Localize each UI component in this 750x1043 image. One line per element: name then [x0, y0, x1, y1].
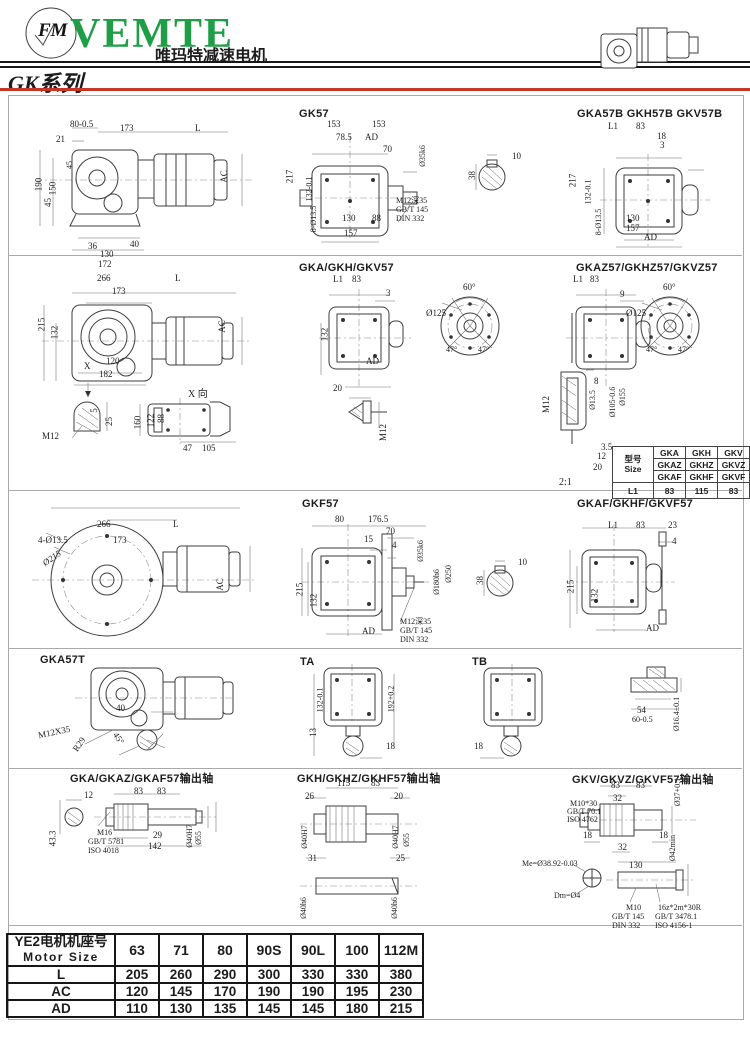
size-cell: GKV — [718, 447, 750, 459]
size-cell: GKHZ — [686, 459, 718, 471]
value-cell: 195 — [335, 983, 379, 1000]
motor-size-table: YE2电机机座号Motor Size 63 71 80 90S 90L 100 … — [6, 933, 424, 1018]
dim-label: 130 — [629, 861, 643, 870]
motor-col: 90S — [247, 934, 291, 966]
size-table: 型号Size GKAGKHGKV GKAZGKHZGKVZ GKAFGKHFGK… — [612, 446, 750, 499]
dim-label: Ø16.4±0.1 — [673, 697, 681, 731]
size-cell: 83 — [718, 483, 750, 499]
dim-label: Ø40H7 — [186, 824, 194, 848]
dim-label: 60° — [663, 283, 676, 292]
size-cell: GKH — [686, 447, 718, 459]
flange-view-drawing — [632, 286, 708, 362]
value-cell: 190 — [247, 983, 291, 1000]
dim-label: 45 — [44, 198, 53, 207]
dim-label: 130 — [342, 214, 356, 223]
value-cell: 145 — [159, 983, 203, 1000]
dim-label: 78.5 — [336, 133, 352, 142]
dim-label: AD — [646, 624, 659, 633]
dim-label: 47° — [478, 346, 489, 354]
value-cell: 190 — [291, 983, 335, 1000]
dim-label: 157 — [344, 229, 358, 238]
dim-label: 3 — [660, 141, 665, 150]
dim-label: 153 — [327, 120, 341, 129]
dim-label: 54 — [637, 706, 646, 715]
dim-label: AD — [362, 627, 375, 636]
dim-label: Ø125 — [426, 309, 446, 318]
dim-label: 4 — [672, 537, 677, 546]
dim-label: 38 — [468, 171, 477, 180]
dim-label: 172 — [98, 260, 112, 269]
value-cell: 145 — [291, 1000, 335, 1017]
dim-label: 40 — [116, 704, 125, 713]
dim-label: 83 — [636, 122, 645, 131]
dim-label: 4-Ø13.5 — [38, 536, 68, 545]
note-label: ISO 4156-1 — [655, 921, 693, 931]
value-cell: 330 — [291, 966, 335, 983]
dim-label: 115 — [337, 779, 350, 788]
dim-label: 40 — [130, 240, 139, 249]
dim-label: 15 — [364, 535, 373, 544]
dim-label: Ø55 — [403, 833, 411, 847]
dim-label: 18 — [583, 831, 592, 840]
dim-label: 132-0.1 — [305, 177, 313, 202]
motor-col: 63 — [115, 934, 159, 966]
dim-label: M12 — [42, 432, 59, 441]
gkahv-side-view-drawing — [30, 283, 258, 403]
row-label: L — [7, 966, 115, 983]
dim-label: M12 — [379, 424, 388, 441]
dim-label: 215 — [566, 580, 575, 594]
dim-label: 173 — [112, 287, 126, 296]
dim-label: 12 — [597, 452, 606, 461]
dim-label: AD — [644, 233, 657, 242]
dim-label: 153 — [372, 120, 386, 129]
dim-label: 142 — [148, 842, 162, 851]
dim-label: M12 — [542, 396, 551, 413]
dim-label: 18 — [474, 742, 483, 751]
value-cell: 135 — [203, 1000, 247, 1017]
size-cell: GKVF — [718, 471, 750, 483]
motor-table-header-cn: YE2电机机座号 — [14, 934, 107, 949]
dim-label: 83 — [352, 275, 361, 284]
motor-col: 90L — [291, 934, 335, 966]
dim-label: 120 — [106, 357, 120, 366]
size-table-header-en: Size — [624, 464, 641, 474]
motor-col: 112M — [379, 934, 423, 966]
value-cell: 215 — [379, 1000, 423, 1017]
dim-label: 18 — [659, 831, 668, 840]
dim-label: 13 — [309, 728, 318, 737]
dim-label: Ø40H7 — [392, 825, 400, 849]
dim-label: Ø35k6 — [419, 145, 427, 167]
dim-label: 173 — [120, 124, 134, 133]
dim-label: Me=Ø38.92-0.03 — [522, 860, 578, 868]
dim-label: 215 — [37, 318, 46, 332]
series-title: GK系列 — [8, 66, 83, 98]
gkahv-rear-view-drawing — [315, 283, 415, 393]
flange-view-drawing — [432, 286, 508, 362]
panel-title: GKAF/GKHF/GKVF57 — [577, 498, 693, 510]
dim-label: Ø40h6 — [391, 897, 399, 919]
dim-label: 47° — [646, 346, 657, 354]
dim-label: 122 — [146, 414, 155, 428]
motor-col: 80 — [203, 934, 247, 966]
size-cell: GKAF — [654, 471, 686, 483]
dim-label: 132 — [320, 328, 329, 342]
dim-label: 47° — [678, 346, 689, 354]
dim-label: 70 — [383, 145, 392, 154]
dim-label: AD — [366, 357, 379, 366]
value-cell: 145 — [247, 1000, 291, 1017]
catalog-page: FM VEMTE 唯玛特减速电机 GK系列 GK57 GKA57B GKH57B… — [0, 0, 750, 1043]
dim-label: 4 — [392, 541, 397, 550]
dim-label: AC — [220, 170, 229, 183]
value-cell: 380 — [379, 966, 423, 983]
dim-label: 43.3 — [48, 831, 57, 847]
dim-label: 182 — [99, 370, 113, 379]
logo-monogram: FM — [38, 20, 68, 42]
dim-label: 47° — [446, 346, 457, 354]
dim-label: X — [84, 362, 91, 371]
panel-title: GK57 — [299, 108, 329, 120]
dim-label: 31 — [308, 854, 317, 863]
value-cell: 330 — [335, 966, 379, 983]
dim-label: 176.5 — [368, 515, 388, 524]
dim-label: 80-0.5 — [70, 120, 93, 129]
dim-label: 83 — [590, 275, 599, 284]
value-cell: 110 — [115, 1000, 159, 1017]
size-cell: L1 — [613, 483, 654, 499]
motor-table-header-en: Motor Size — [23, 950, 99, 964]
value-cell: 180 — [335, 1000, 379, 1017]
dim-label: 190 — [34, 178, 43, 192]
dim-label: AC — [218, 320, 227, 333]
dim-label: 105 — [202, 444, 216, 453]
dim-label: L1 — [333, 275, 343, 284]
dim-label: 3 — [386, 289, 391, 298]
dim-label: 157 — [626, 224, 640, 233]
dim-label: Ø37+0.1 — [674, 778, 682, 806]
dim-label: 88 — [372, 214, 381, 223]
dim-label: 10 — [518, 558, 527, 567]
dim-label: Ø40h6 — [300, 897, 308, 919]
dim-label: 70 — [386, 527, 395, 536]
dim-label: AD — [365, 133, 378, 142]
dim-label: Ø42min — [669, 835, 677, 861]
dim-label: 130 — [626, 214, 640, 223]
dim-label: 25 — [396, 854, 405, 863]
dim-label: 83 — [157, 787, 166, 796]
dim-label: 217 — [568, 174, 577, 188]
dim-label: 132 — [590, 589, 599, 603]
size-cell: GKAZ — [654, 459, 686, 471]
dim-label: 88 — [157, 414, 166, 423]
value-cell: 260 — [159, 966, 203, 983]
dim-label: L1 — [608, 122, 618, 131]
dim-label: 132 — [50, 326, 59, 340]
dim-label: Ø35k6 — [417, 540, 425, 562]
dim-label: L1 — [573, 275, 583, 284]
accent-rule — [0, 88, 750, 91]
dim-label: 83 — [636, 521, 645, 530]
dim-label: Ø13.5 — [589, 390, 597, 410]
dim-label: 20 — [593, 463, 602, 472]
scale-label: 2:1 — [559, 478, 572, 488]
panel-title: GKF57 — [302, 498, 339, 510]
dim-label: 32 — [613, 794, 622, 803]
dim-label: 9 — [620, 290, 625, 299]
note-label: DIN 332 — [400, 635, 428, 645]
dim-label: 12 — [84, 791, 93, 800]
gkaf-rear-view-drawing — [560, 510, 680, 638]
value-cell: 205 — [115, 966, 159, 983]
dim-label: 160 — [133, 416, 142, 430]
motor-col: 71 — [159, 934, 203, 966]
dim-label: 130 — [100, 250, 114, 259]
dim-label: 20 — [333, 384, 342, 393]
note-label: ISO 4018 — [88, 846, 119, 856]
note-label: DIN 332 — [396, 214, 424, 224]
dim-label: Dm=Ø4 — [554, 892, 580, 900]
dim-label: AC — [216, 578, 225, 591]
value-cell: 130 — [159, 1000, 203, 1017]
size-cell: 83 — [654, 483, 686, 499]
value-cell: 290 — [203, 966, 247, 983]
dim-label: L1 — [608, 521, 618, 530]
dim-label: 36 — [88, 242, 97, 251]
dim-label: 60-0.5 — [632, 716, 653, 724]
size-cell: 115 — [686, 483, 718, 499]
dim-label: 83 — [611, 781, 620, 790]
dim-label: 8-Ø13.5 — [595, 209, 603, 235]
row-label: AC — [7, 983, 115, 1000]
dim-label: 217 — [285, 170, 294, 184]
dim-label: 132-0.1 — [316, 688, 324, 713]
dim-label: Ø250 — [445, 565, 453, 583]
dim-label: 266 — [97, 520, 111, 529]
row-label: AD — [7, 1000, 115, 1017]
dim-label: 21 — [56, 135, 65, 144]
dim-label: 132 — [309, 594, 318, 608]
dim-label: Ø40H7 — [301, 825, 309, 849]
size-cell: GKA — [654, 447, 686, 459]
dim-label: 38 — [476, 576, 485, 585]
dim-label: 8 — [594, 377, 599, 386]
dim-label: 83 — [636, 781, 645, 790]
dim-label: 32 — [618, 843, 627, 852]
dim-label: 47 — [183, 444, 192, 453]
dim-label: 192+0.2 — [387, 686, 395, 713]
value-cell: 230 — [379, 983, 423, 1000]
dim-label: 23 — [668, 521, 677, 530]
dim-label: 18 — [386, 742, 395, 751]
panel-title: GKAZ57/GKHZ57/GKVZ57 — [576, 262, 718, 274]
dim-label: Ø155 — [619, 388, 627, 406]
dim-label: 29 — [153, 831, 162, 840]
dim-label: 266 — [97, 274, 111, 283]
dim-label: Ø125 — [626, 309, 646, 318]
size-cell: GKVZ — [718, 459, 750, 471]
panel-title: GKA/GKH/GKV57 — [299, 262, 394, 274]
dim-label: Ø55 — [195, 831, 203, 845]
dim-label: L — [175, 274, 181, 283]
note-label: ISO 4762 — [567, 815, 598, 825]
dim-label: L — [195, 124, 201, 133]
dim-label: Ø180h6 — [433, 569, 441, 595]
dim-label: 83 — [134, 787, 143, 796]
dim-label: 8-Ø13.5 — [310, 206, 318, 232]
dim-label: 60° — [463, 283, 476, 292]
dim-label: Ø105-0.6 — [609, 387, 617, 417]
dim-label: 26 — [305, 792, 314, 801]
dim-label: 80 — [335, 515, 344, 524]
gearbox-art-icon — [595, 10, 705, 78]
gkf57-side-view-drawing — [22, 500, 264, 642]
dim-label: L — [173, 520, 179, 529]
dim-label: 45 — [66, 161, 74, 169]
dim-label: 25 — [105, 417, 114, 426]
size-cell: GKHF — [686, 471, 718, 483]
dim-label: 215 — [295, 583, 304, 597]
dim-label: 173 — [113, 536, 127, 545]
row-divider — [8, 648, 742, 649]
value-cell: 170 — [203, 983, 247, 1000]
note-label: DIN 332 — [612, 921, 640, 931]
motor-col: 100 — [335, 934, 379, 966]
dim-label: 83 — [371, 779, 380, 788]
value-cell: 120 — [115, 983, 159, 1000]
panel-title: GKA57B GKH57B GKV57B — [577, 108, 722, 120]
dim-label: 132-0.1 — [584, 180, 592, 205]
row-divider — [8, 768, 742, 769]
dim-label: 20 — [394, 792, 403, 801]
dim-label: 5 — [90, 408, 99, 413]
dim-label: 10 — [512, 152, 521, 161]
dim-label: 150 — [48, 182, 57, 196]
value-cell: 300 — [247, 966, 291, 983]
